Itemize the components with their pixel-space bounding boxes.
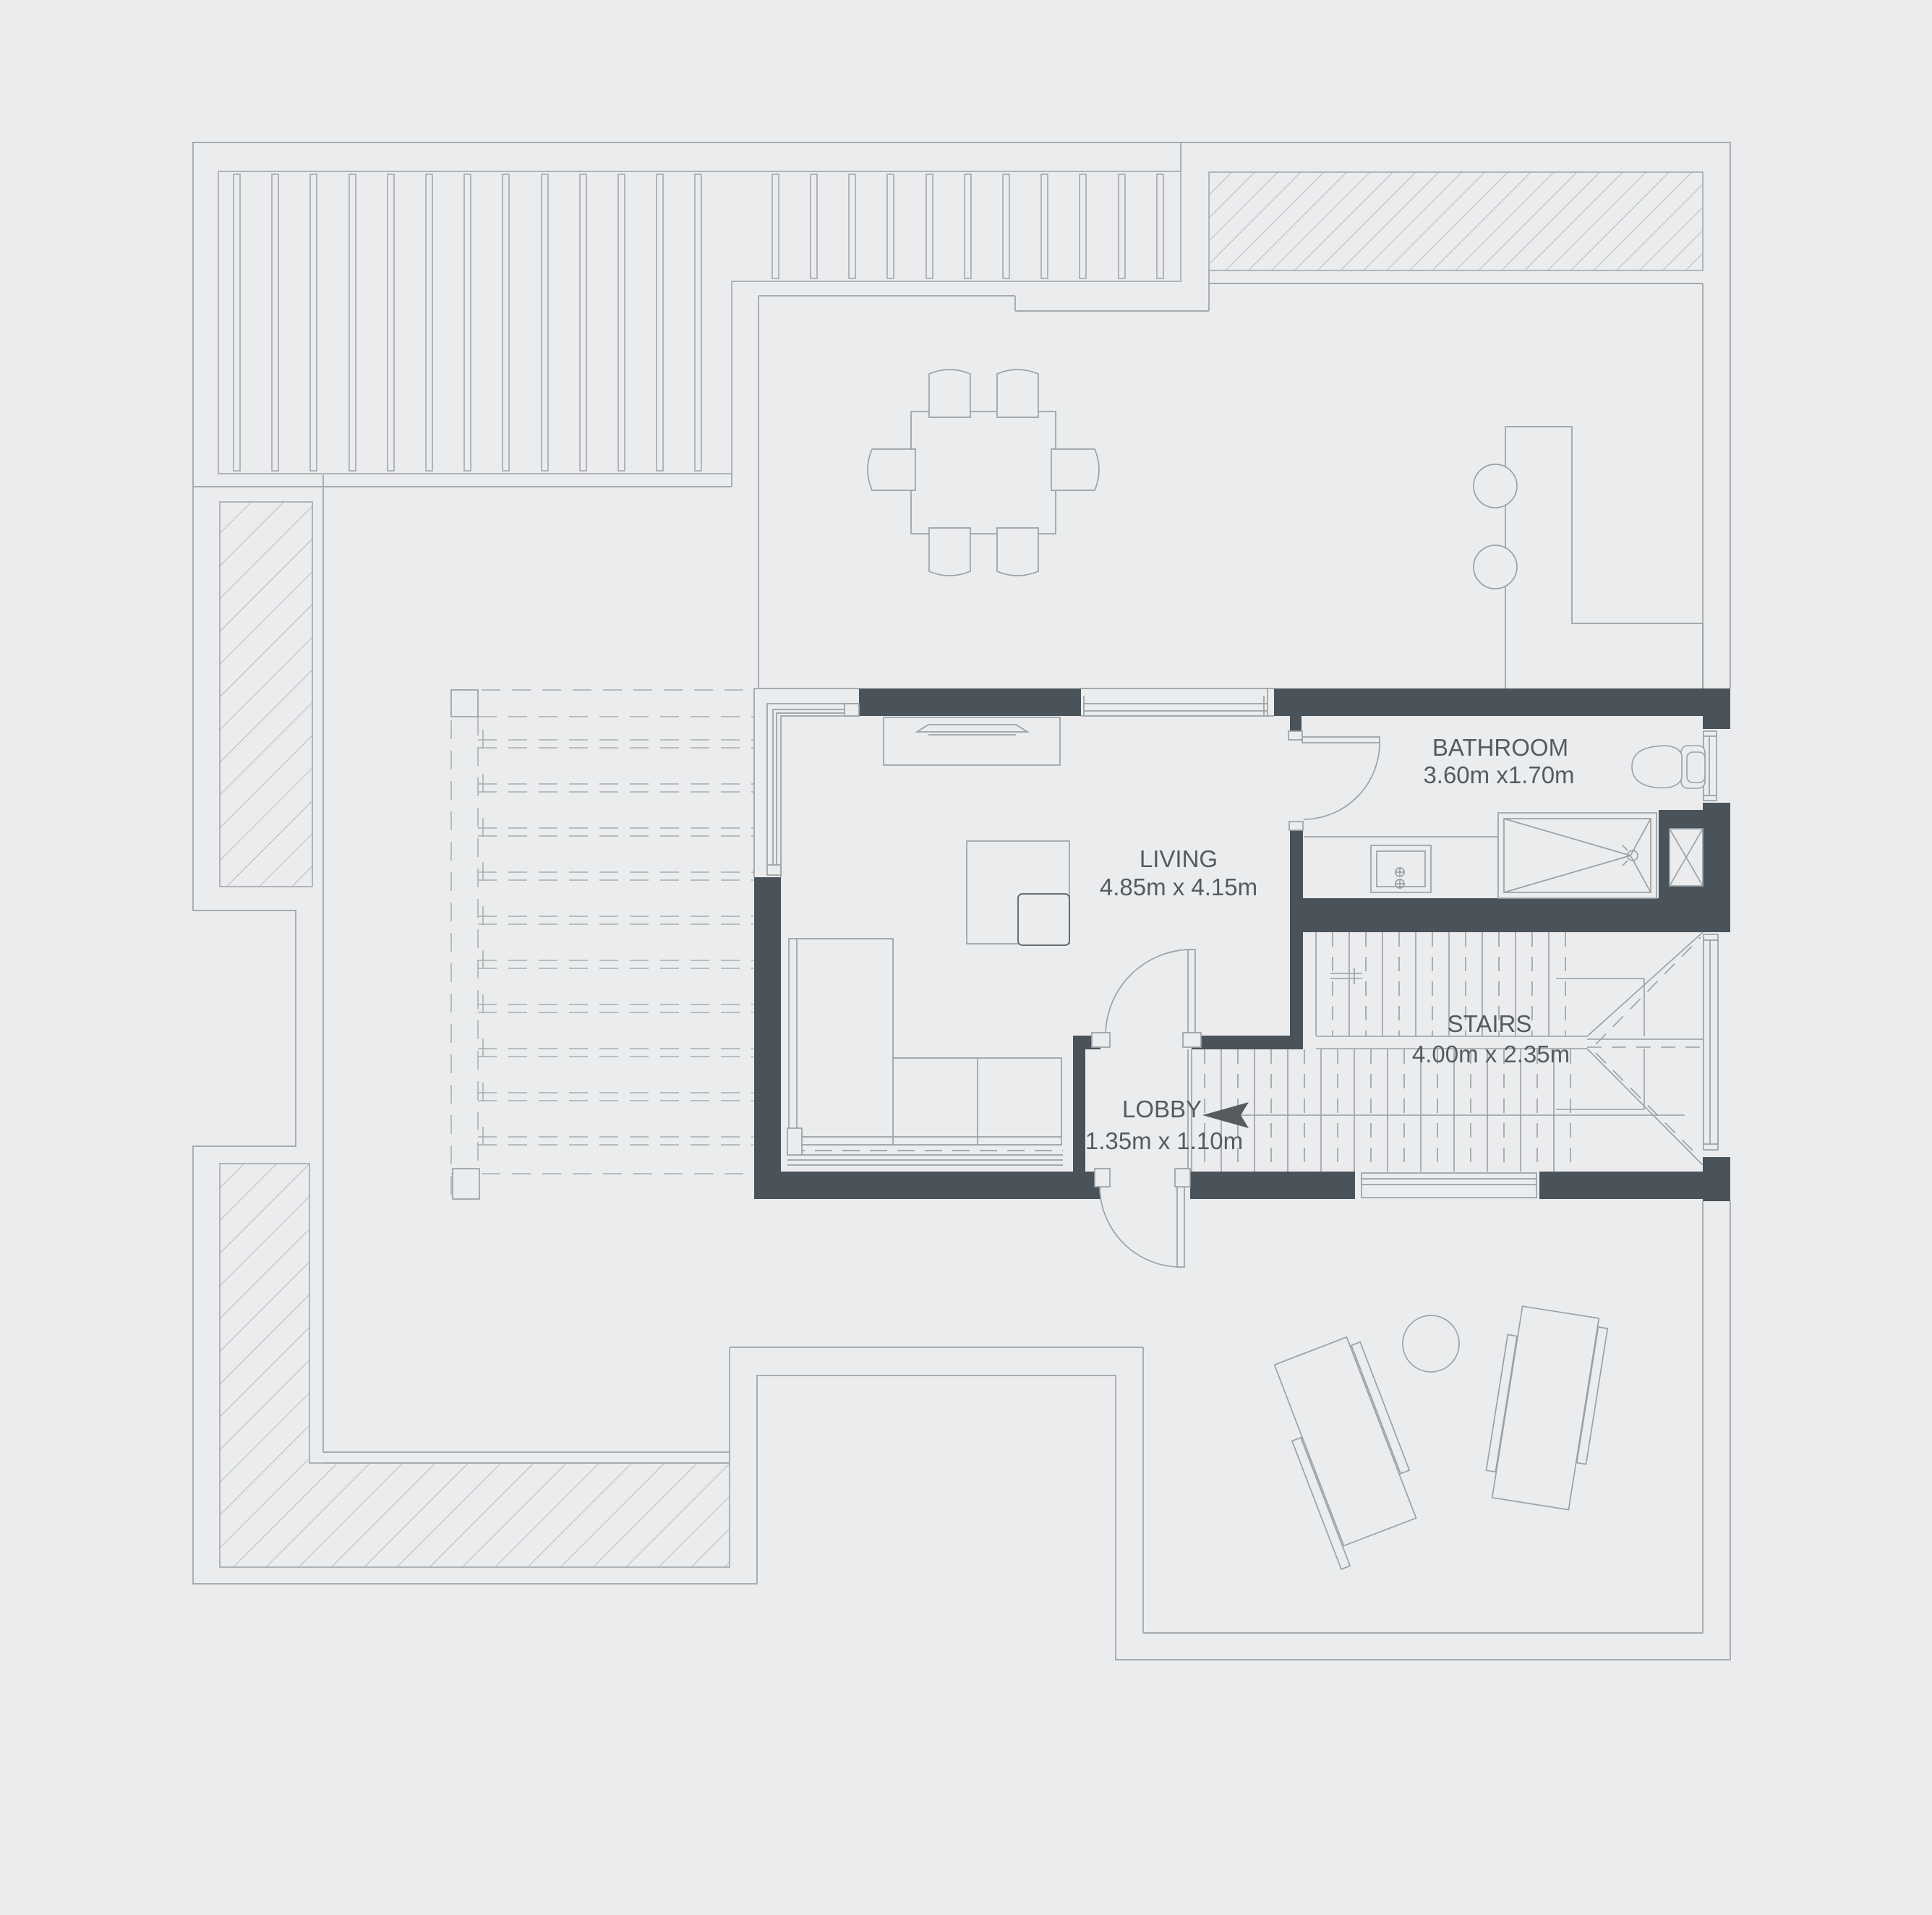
svg-text:LOBBY: LOBBY [1122,1096,1202,1122]
svg-text:4.85m x 4.15m: 4.85m x 4.15m [1100,874,1257,900]
svg-text:BATHROOM: BATHROOM [1432,734,1568,761]
svg-text:STAIRS: STAIRS [1448,1010,1532,1037]
svg-text:LIVING: LIVING [1140,845,1218,872]
svg-text:1.35m x 1.10m: 1.35m x 1.10m [1085,1127,1243,1154]
svg-text:4.00m x 2.35m: 4.00m x 2.35m [1412,1041,1570,1067]
svg-text:3.60m x1.70m: 3.60m x1.70m [1423,762,1574,788]
